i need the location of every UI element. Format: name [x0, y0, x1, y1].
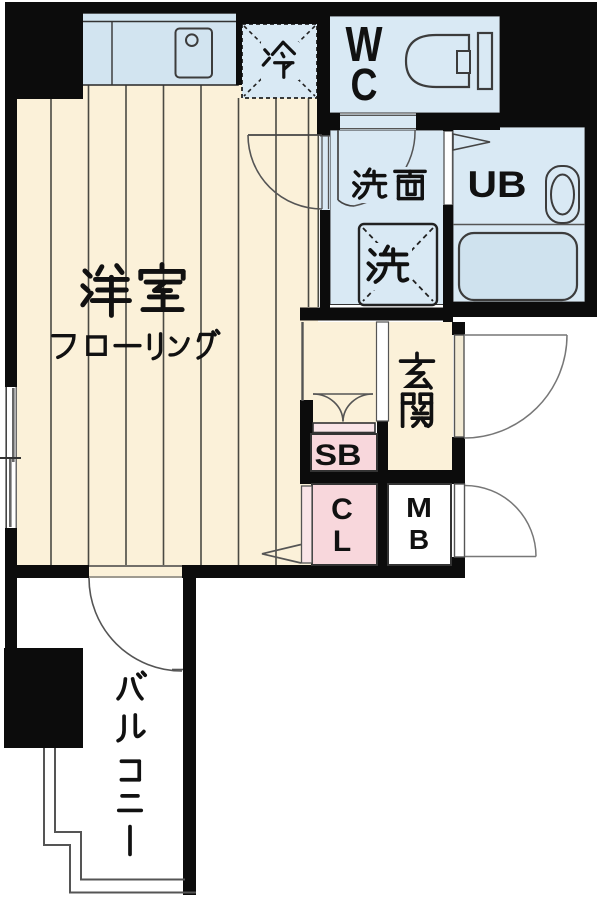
svg-text:SB: SB: [315, 439, 362, 472]
svg-text:M: M: [406, 492, 432, 523]
svg-text:UB: UB: [468, 164, 527, 205]
svg-text:C: C: [331, 493, 353, 526]
svg-text:C: C: [351, 59, 378, 110]
svg-text:B: B: [409, 524, 429, 555]
svg-text:L: L: [333, 525, 351, 558]
